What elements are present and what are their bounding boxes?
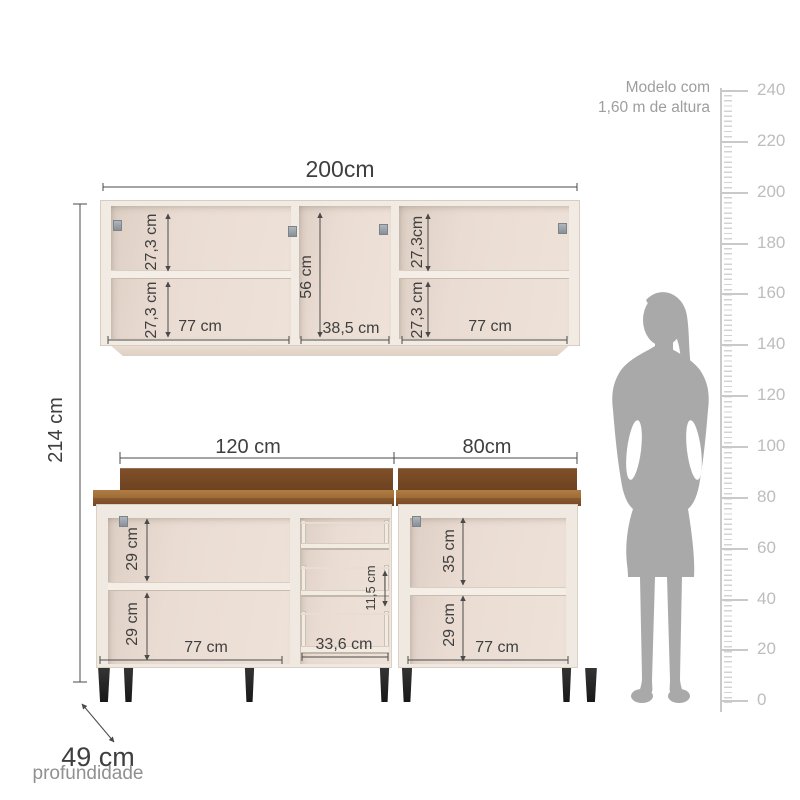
base-right-width-label: 80cm bbox=[427, 436, 547, 459]
ruler-label: 200 bbox=[757, 182, 799, 202]
ruler-major-tick bbox=[720, 344, 748, 346]
ruler-major-tick bbox=[720, 293, 748, 295]
scale-figure-caption: Modelo com 1,60 m de altura bbox=[570, 78, 710, 118]
product-dimensions-diagram: 200cm 27,3 cm 27,3 cm 77 cm 56 cm 38,5 c… bbox=[0, 0, 800, 800]
wall-left-bottom-label: 27,3 cm bbox=[143, 265, 161, 355]
ruler-major-tick bbox=[720, 599, 748, 601]
base-left-width-inner-label: 77 cm bbox=[161, 639, 251, 657]
ruler-major-tick bbox=[720, 90, 748, 92]
ruler-major-tick bbox=[720, 395, 748, 397]
base-right-width-inner-label: 77 cm bbox=[452, 639, 542, 657]
ruler-label: 120 bbox=[757, 385, 799, 405]
ruler-major-tick bbox=[720, 243, 748, 245]
ruler-label: 20 bbox=[757, 639, 799, 659]
ruler-label: 220 bbox=[757, 131, 799, 151]
left-leg bbox=[638, 577, 655, 694]
ruler-label: 160 bbox=[757, 283, 799, 303]
wall-middle-height-label: 56 cm bbox=[298, 232, 316, 322]
ruler-major-tick bbox=[720, 548, 748, 550]
ruler-label: 60 bbox=[757, 538, 799, 558]
ruler-label: 180 bbox=[757, 233, 799, 253]
wall-left-width-label: 77 cm bbox=[155, 318, 245, 336]
ruler-major-tick bbox=[720, 700, 748, 702]
ruler-major-tick bbox=[720, 446, 748, 448]
dim-line-214cm bbox=[73, 204, 87, 682]
ruler-major-tick bbox=[720, 497, 748, 499]
right-leg bbox=[667, 577, 684, 694]
ruler-major-tick bbox=[720, 192, 748, 194]
dim-line-200cm bbox=[103, 183, 577, 191]
ruler-line bbox=[720, 88, 722, 712]
ruler-label: 240 bbox=[757, 80, 799, 100]
overall-height-label: 214 cm bbox=[47, 385, 65, 475]
base-left-width-label: 120 cm bbox=[188, 436, 308, 459]
wall-width-label: 200cm bbox=[270, 156, 410, 183]
wall-right-bottom-label: 27,3 cm bbox=[409, 265, 427, 355]
base-left-bottom-label: 29 cm bbox=[124, 579, 142, 669]
caption-line-2: 1,60 m de altura bbox=[570, 98, 710, 118]
base-tray-spacing-label: 11,5 cm bbox=[362, 543, 380, 633]
depth-caption: profundidade bbox=[8, 763, 168, 785]
wall-middle-width-label: 38,5 cm bbox=[306, 320, 396, 338]
base-middle-width-label: 33,6 cm bbox=[299, 636, 389, 654]
ruler-label: 0 bbox=[757, 690, 799, 710]
dim-line-depth bbox=[82, 704, 114, 742]
caption-line-1: Modelo com bbox=[570, 78, 710, 98]
ruler-label: 80 bbox=[757, 487, 799, 507]
ruler-label: 140 bbox=[757, 334, 799, 354]
ruler-major-tick bbox=[720, 141, 748, 143]
ruler-label: 40 bbox=[757, 589, 799, 609]
ruler-label: 100 bbox=[757, 436, 799, 456]
female-silhouette bbox=[606, 292, 716, 706]
ruler-major-tick bbox=[720, 649, 748, 651]
wall-right-width-label: 77 cm bbox=[445, 318, 535, 336]
